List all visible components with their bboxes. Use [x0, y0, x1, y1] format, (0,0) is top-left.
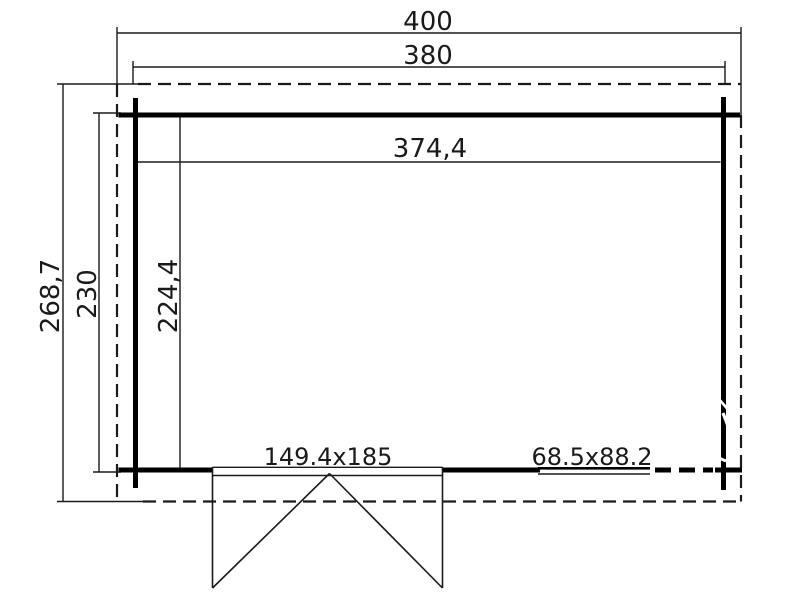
floor-plan: 400 380 268,7 230 224,4 374,4	[0, 0, 800, 600]
interior-depth-label: 224,4	[154, 259, 184, 333]
door-size-label: 149.4x185	[264, 443, 393, 471]
door-swing-left	[213, 474, 330, 589]
overall-width-label: 400	[403, 7, 453, 37]
dimension-wall-depth: 230	[73, 113, 121, 472]
wall-depth-label: 230	[73, 269, 103, 319]
door-symbol	[213, 467, 443, 588]
dimension-wall-width: 380	[133, 41, 725, 84]
dimension-interior-depth: 224,4	[154, 115, 184, 468]
door-swing-right	[330, 474, 443, 589]
dimension-interior-width: 374,4	[138, 134, 721, 164]
wall-width-label: 380	[403, 41, 453, 71]
overall-depth-label: 268,7	[36, 259, 66, 333]
floor-plan-drawing: 400 380 268,7 230 224,4 374,4	[0, 0, 800, 600]
window-size-label: 68.5x88.2	[531, 443, 652, 471]
interior-width-label: 374,4	[393, 134, 467, 164]
